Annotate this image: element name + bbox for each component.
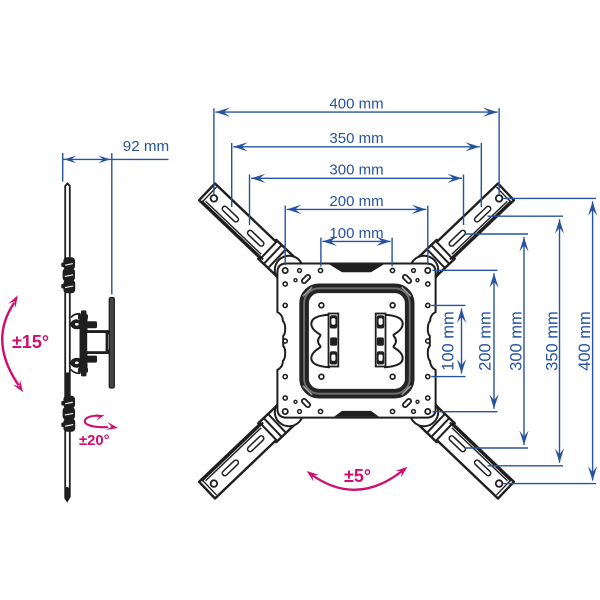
svg-text:±5°: ±5° — [344, 466, 371, 486]
svg-text:400 mm: 400 mm — [329, 96, 383, 113]
svg-text:100 mm: 100 mm — [329, 225, 383, 242]
svg-text:200 mm: 200 mm — [329, 193, 383, 210]
svg-text:300 mm: 300 mm — [508, 311, 526, 371]
svg-text:100 mm: 100 mm — [440, 311, 458, 371]
svg-text:300 mm: 300 mm — [329, 162, 383, 179]
svg-text:200 mm: 200 mm — [477, 311, 495, 371]
svg-text:92 mm: 92 mm — [123, 138, 169, 155]
svg-text:400 mm: 400 mm — [576, 311, 594, 371]
svg-text:350 mm: 350 mm — [543, 311, 561, 371]
svg-text:±20°: ±20° — [79, 433, 110, 449]
svg-text:350 mm: 350 mm — [329, 130, 383, 147]
svg-text:±15°: ±15° — [12, 332, 49, 352]
